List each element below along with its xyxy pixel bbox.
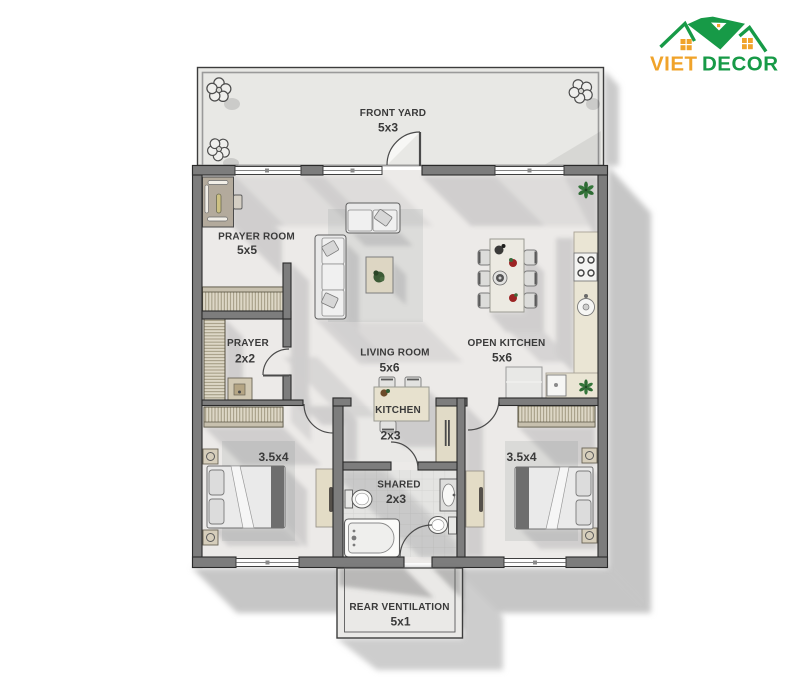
svg-text:VIET: VIET [650,53,698,76]
svg-text:KITCHEN: KITCHEN [375,405,421,416]
svg-text:3.5x4: 3.5x4 [258,450,288,464]
svg-text:PRAYER: PRAYER [227,338,270,349]
svg-text:5x1: 5x1 [390,615,410,629]
svg-text:3.5x4: 3.5x4 [506,450,536,464]
svg-text:5x3: 5x3 [378,121,398,135]
svg-text:OPEN KITCHEN: OPEN KITCHEN [468,338,546,349]
svg-text:2x3: 2x3 [380,429,400,443]
svg-text:LIVING ROOM: LIVING ROOM [360,348,429,359]
svg-text:DECOR: DECOR [702,53,779,76]
svg-text:FRONT YARD: FRONT YARD [360,108,426,119]
svg-text:5x5: 5x5 [237,243,257,257]
svg-text:5x6: 5x6 [379,361,399,375]
svg-text:2x2: 2x2 [235,352,255,366]
svg-text:SHARED: SHARED [377,480,420,491]
svg-text:2x3: 2x3 [386,492,406,506]
svg-text:REAR VENTILATION: REAR VENTILATION [349,602,449,613]
svg-text:5x6: 5x6 [492,351,512,365]
svg-text:PRAYER ROOM: PRAYER ROOM [218,232,295,243]
